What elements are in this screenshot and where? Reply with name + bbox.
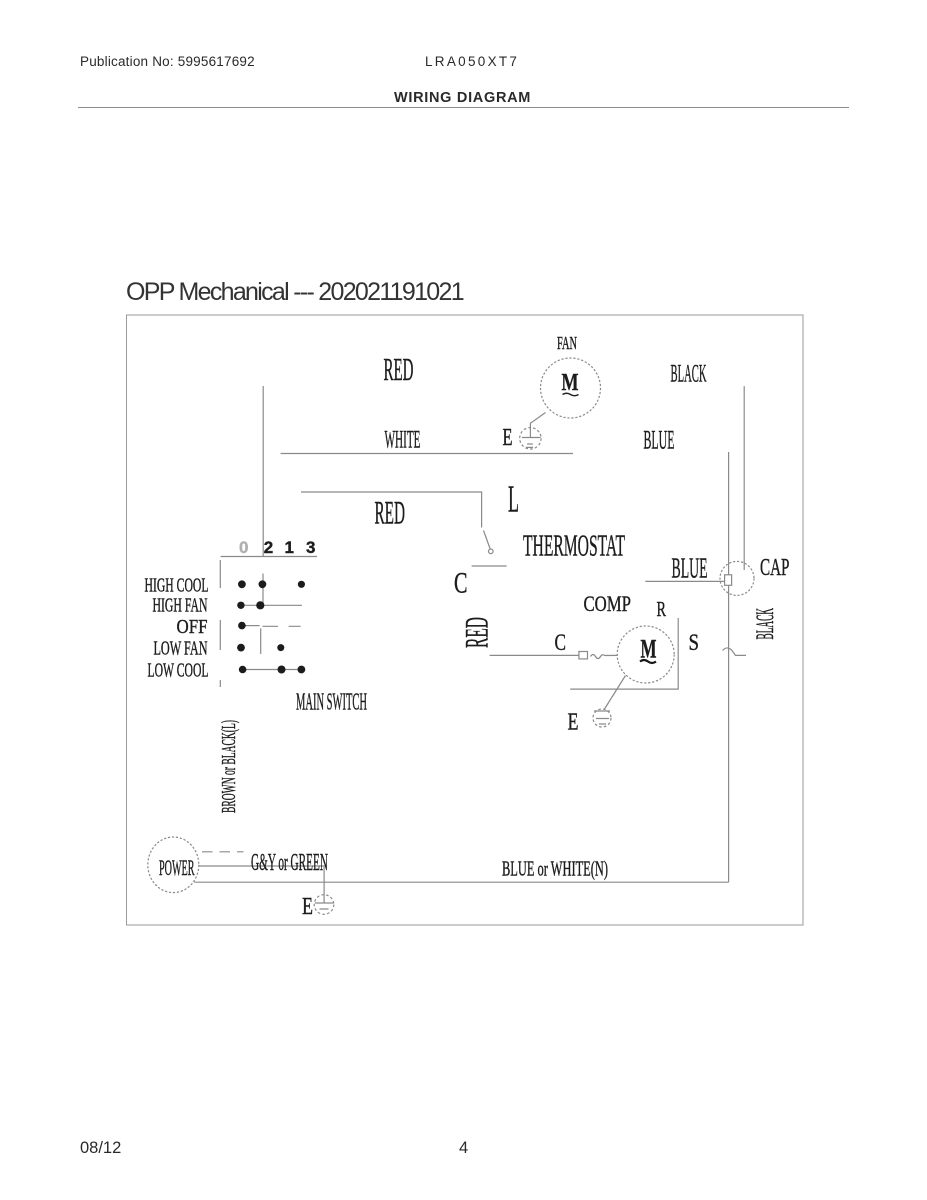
svg-text:BLUE or WHITE(N): BLUE or WHITE(N) <box>502 857 608 881</box>
svg-text:R: R <box>657 597 667 621</box>
svg-text:HIGH COOL: HIGH COOL <box>145 575 209 597</box>
svg-text:3: 3 <box>306 538 315 557</box>
svg-text:FAN: FAN <box>557 333 577 353</box>
svg-text:G&Y or GREEN: G&Y or GREEN <box>251 850 328 876</box>
svg-text:0: 0 <box>239 538 248 557</box>
svg-text:E: E <box>503 425 513 451</box>
svg-text:WHITE: WHITE <box>385 427 421 454</box>
svg-text:L: L <box>508 479 519 521</box>
svg-text:BROWN or BLACK(L): BROWN or BLACK(L) <box>218 720 240 813</box>
svg-text:BLACK: BLACK <box>750 608 779 640</box>
svg-text:M: M <box>562 370 579 396</box>
svg-text:THERMOSTAT: THERMOSTAT <box>523 528 625 563</box>
svg-text:HIGH FAN: HIGH FAN <box>153 595 208 617</box>
svg-text:2: 2 <box>264 538 273 557</box>
svg-text:RED: RED <box>384 351 414 387</box>
svg-text:LOW FAN: LOW FAN <box>154 638 208 660</box>
svg-text:C: C <box>555 630 567 656</box>
svg-text:BLACK: BLACK <box>671 361 707 388</box>
svg-text:CAP: CAP <box>760 554 790 581</box>
svg-text:OFF: OFF <box>177 616 208 638</box>
svg-text:COMP: COMP <box>584 591 632 616</box>
svg-text:POWER: POWER <box>159 855 195 880</box>
svg-text:E: E <box>302 894 313 920</box>
svg-text:BLUE: BLUE <box>672 553 708 585</box>
svg-text:BLUE: BLUE <box>644 426 675 455</box>
svg-text:S: S <box>689 630 700 656</box>
svg-text:E: E <box>568 710 579 736</box>
svg-text:C: C <box>454 567 468 600</box>
svg-text:MAIN SWITCH: MAIN SWITCH <box>296 690 367 716</box>
svg-text:LOW COOL: LOW COOL <box>148 660 209 682</box>
svg-text:1: 1 <box>285 538 294 557</box>
svg-text:RED: RED <box>460 617 496 648</box>
svg-text:RED: RED <box>375 496 406 532</box>
